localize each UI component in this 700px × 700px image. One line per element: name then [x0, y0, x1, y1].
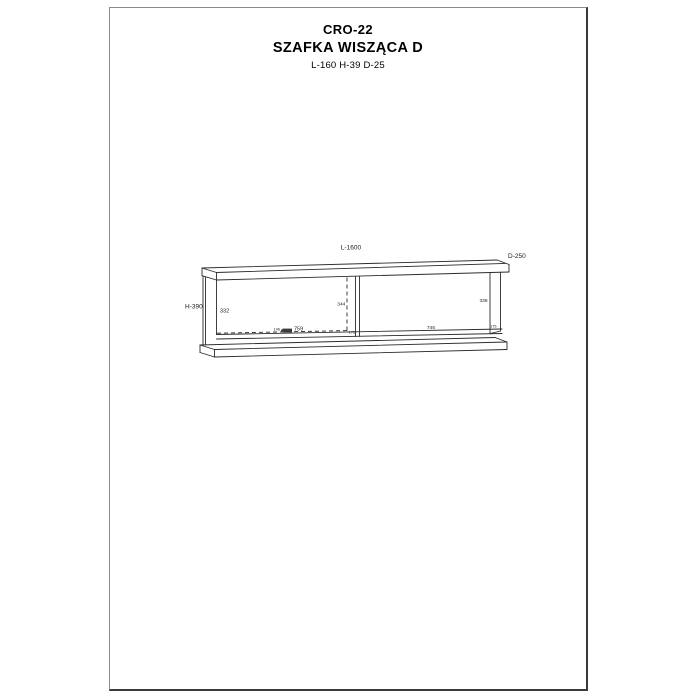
label-length: L-1600 — [341, 245, 362, 252]
dim-divider-thickness: 175 — [349, 331, 355, 335]
cabinet-technical-drawing: L-1600 D-250 H-390 332 344 338 146 759 7… — [0, 0, 700, 700]
dim-hinge-offset: 146 — [274, 327, 280, 331]
dim-right-compartment-width: 746 — [427, 325, 435, 331]
dim-left-interior-height: 332 — [220, 309, 229, 315]
screenshot-root: { "title": { "model": "CRO-22", "name": … — [0, 0, 700, 700]
dim-left-door-height: 344 — [337, 302, 345, 308]
middle-divider-panel — [356, 276, 360, 336]
dim-right-interior-height: 338 — [479, 298, 487, 304]
dim-left-compartment-width: 759 — [294, 327, 303, 333]
label-height: H-390 — [185, 304, 203, 311]
hinge-icon — [281, 329, 292, 333]
door-outline-dashed — [217, 278, 347, 334]
label-depth: D-250 — [508, 253, 526, 260]
left-side-panel — [203, 277, 217, 346]
bottom-panel — [200, 338, 507, 358]
dim-right-edge-thickness: 175 — [490, 325, 496, 329]
